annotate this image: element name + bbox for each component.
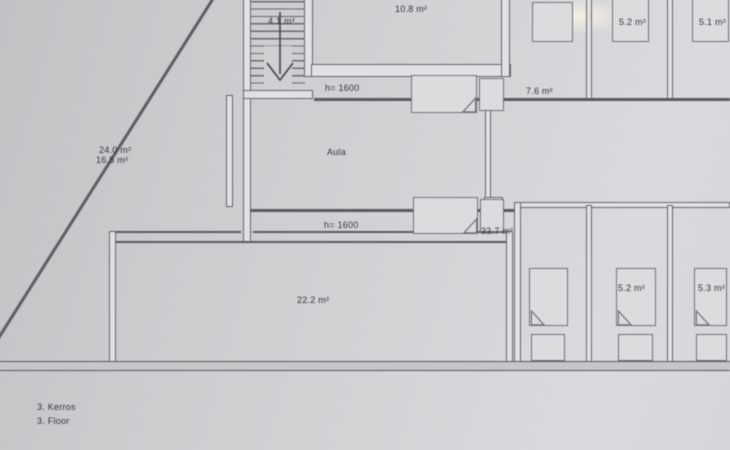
bed-fold-icon bbox=[530, 310, 545, 326]
height-1600-bottom-label: h= 1600 bbox=[324, 220, 359, 231]
bed-fold-icon bbox=[463, 218, 478, 234]
left-slope-net-area-label: 16.5 m² bbox=[96, 155, 128, 166]
bed-fold-icon bbox=[617, 310, 632, 326]
wall-large-room-right bbox=[506, 231, 513, 364]
bottom-right-room2-area-label: 5.2 m² bbox=[618, 283, 645, 294]
floor-title-english: 3. Floor bbox=[37, 416, 70, 427]
wall-top-divider-2 bbox=[667, 0, 673, 101]
wall-large-room-left bbox=[109, 231, 116, 364]
bottom-right-room3-area-label: 5.3 m² bbox=[698, 283, 725, 294]
bed-bottom-room-1 bbox=[529, 268, 568, 361]
bed-top-room-1 bbox=[532, 2, 573, 42]
wall-outer-bottom bbox=[0, 361, 730, 371]
wall-large-room-top-inner bbox=[109, 241, 513, 243]
bed-mattress bbox=[532, 2, 573, 42]
bed-pillow bbox=[479, 78, 504, 111]
wall-top-divider-1 bbox=[586, 0, 592, 101]
floor-title-finnish: 3. Kerros bbox=[37, 402, 76, 413]
wall-large-room-top-outer-left bbox=[109, 231, 241, 233]
bed-bottom-room-3 bbox=[694, 268, 730, 361]
bed-bottom-room-2 bbox=[616, 268, 656, 361]
floor-plan-photo: 4.1 m² 10.8 m² 5.2 m² 5.1 m² h= 1600 7.6… bbox=[0, 0, 730, 450]
staircase-area-label: 4.1 m² bbox=[268, 16, 295, 27]
height-1600-top-label: h= 1600 bbox=[325, 83, 360, 94]
hall-name-label: Aula bbox=[327, 147, 346, 158]
roof-slope-line bbox=[0, 0, 214, 339]
bed-fold-icon bbox=[695, 310, 710, 326]
bed-pillow bbox=[618, 334, 653, 361]
top-room-area-label: 10.8 m² bbox=[395, 4, 427, 15]
large-room-area-label: 22.2 m² bbox=[297, 295, 329, 306]
wall-bottom-room-left bbox=[514, 202, 521, 364]
wall-aula-right bbox=[485, 100, 491, 206]
wall-knee-left bbox=[226, 95, 233, 207]
wall-bottom-rooms-top bbox=[514, 202, 730, 208]
bed-pillow bbox=[696, 334, 727, 361]
wall-bottom-divider-1 bbox=[586, 205, 592, 364]
bed-corridor-top bbox=[411, 75, 505, 113]
bed-fold-icon bbox=[462, 97, 477, 113]
wall-bottom-divider-2 bbox=[667, 205, 673, 364]
bed-pillow bbox=[531, 334, 565, 361]
top-right-room2-area-label: 5.2 m² bbox=[619, 17, 646, 28]
hall-area-label: 33.7 m² bbox=[481, 226, 513, 237]
front-room-area-label: 7.6 m² bbox=[526, 86, 553, 97]
wall-top-room-right bbox=[501, 0, 510, 77]
floor-plan-drawing: 4.1 m² 10.8 m² 5.2 m² 5.1 m² h= 1600 7.6… bbox=[0, 0, 730, 450]
height-1600-line-top bbox=[314, 98, 730, 101]
top-right-room3-area-label: 5.1 m² bbox=[699, 17, 726, 28]
